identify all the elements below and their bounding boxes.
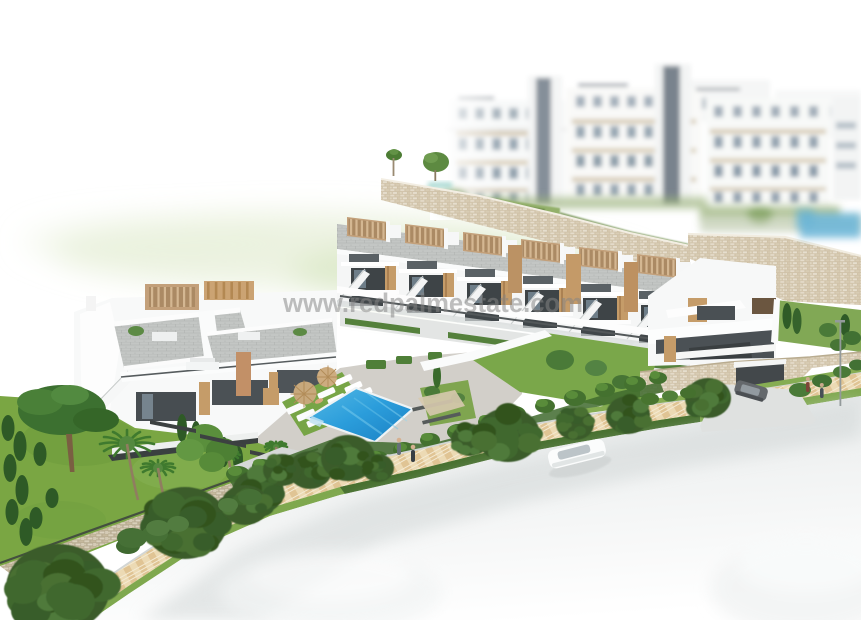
svg-text:www.redpalmestate.com: www.redpalmestate.com [282, 288, 583, 318]
